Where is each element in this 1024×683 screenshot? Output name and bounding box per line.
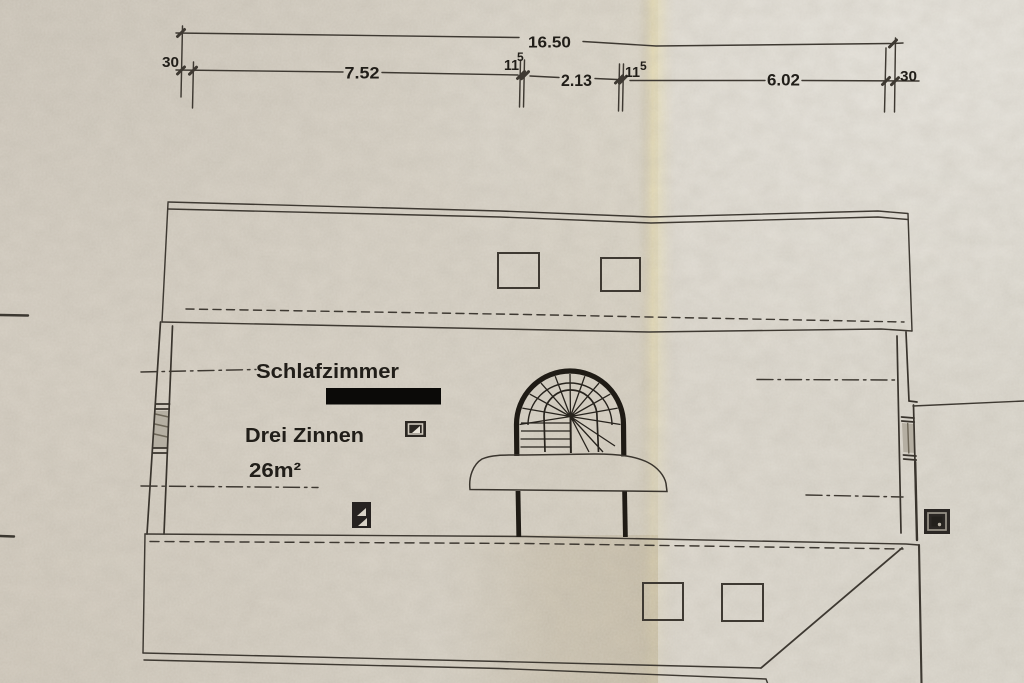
svg-text:6.02: 6.02 — [767, 72, 800, 90]
svg-text:7.52: 7.52 — [345, 65, 380, 83]
svg-text:Schlafzimmer: Schlafzimmer — [256, 360, 399, 383]
svg-text:Drei Zinnen: Drei Zinnen — [245, 424, 364, 447]
svg-text:30: 30 — [900, 68, 917, 85]
svg-text:16.50: 16.50 — [528, 35, 571, 52]
svg-text:5: 5 — [640, 59, 647, 73]
svg-text:11: 11 — [625, 64, 640, 81]
svg-text:30: 30 — [162, 54, 179, 71]
svg-text:5: 5 — [517, 50, 524, 64]
svg-text:26m²: 26m² — [249, 459, 301, 482]
svg-text:2.13: 2.13 — [561, 72, 592, 90]
